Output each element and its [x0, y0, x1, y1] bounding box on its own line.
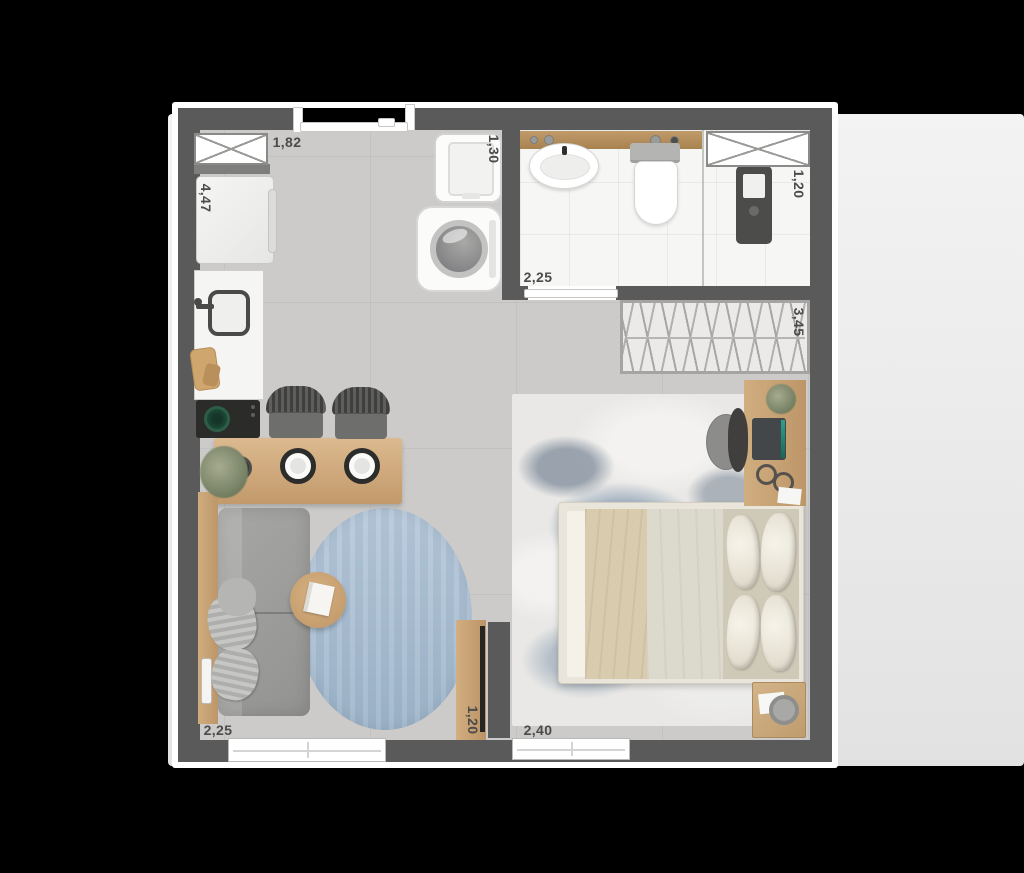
living-balcony-window: [228, 738, 386, 762]
closet-hanger-rack: [620, 300, 810, 374]
bar-stool: [332, 387, 390, 440]
washing-machine: [416, 206, 502, 292]
laundry-bathroom-wall: [502, 130, 520, 286]
window-shaft-bathroom: [706, 131, 810, 167]
stool-seat: [269, 412, 323, 438]
washer-drum: [430, 220, 488, 278]
dimension-shower-width: 1,20: [791, 170, 807, 199]
dimension-bedroom-width: 2,40: [524, 722, 553, 738]
toilet-tank: [630, 143, 680, 163]
shower-column: [736, 166, 772, 244]
plate: [280, 448, 316, 484]
stool-seat: [335, 413, 387, 439]
dimension-laundry: 1,30: [486, 135, 502, 164]
bed-sheet: [647, 509, 723, 679]
dimension-kitchen-side: 4,47: [198, 184, 214, 213]
tv-partition-wall: [488, 622, 510, 738]
floorplan: 1,82 4,47 1,30 2,25 1,20 3,45 2,25 1,20 …: [172, 102, 838, 768]
remote-control: [201, 658, 212, 704]
coffee-table: [290, 572, 346, 628]
kitchen-shaft-divider: [194, 164, 270, 174]
dimension-closet-length: 3,45: [791, 308, 807, 337]
washer-control-panel: [489, 220, 496, 278]
sofa-pillow: [218, 578, 256, 616]
dimension-bathroom-width: 2,25: [524, 269, 553, 285]
desk-chair-back: [728, 408, 748, 472]
kitchen-sink: [208, 290, 250, 336]
bed-sheet-fold: [567, 511, 585, 677]
toilet-bowl: [634, 161, 678, 225]
plate: [344, 448, 380, 484]
dimension-entry-top: 1,82: [273, 134, 302, 150]
green-pan: [204, 406, 230, 432]
dimension-living-width: 2,25: [204, 722, 233, 738]
desk-paper: [777, 487, 802, 505]
stool-back: [266, 386, 326, 414]
bedroom-window: [512, 738, 630, 760]
nightstand-with-lamp: [752, 682, 806, 738]
desk-plant: [766, 384, 796, 414]
stool-back: [332, 387, 390, 415]
faucet-knob: [530, 136, 538, 144]
bed: [558, 502, 804, 684]
canvas: { "plan": { "type": "studio-apartment-fl…: [0, 0, 1024, 873]
laptop: [752, 418, 786, 460]
washbasin: [529, 143, 599, 189]
shower-glass-partition: [702, 130, 704, 286]
bed-blanket: [585, 509, 647, 679]
plant-bar: [200, 446, 248, 498]
bar-stool: [266, 386, 326, 440]
entry-door-handle: [378, 118, 395, 127]
bathroom-door-leaf: [524, 289, 618, 298]
dimension-tv-wall: 1,20: [465, 706, 481, 735]
window-shaft-topleft: [194, 133, 268, 165]
